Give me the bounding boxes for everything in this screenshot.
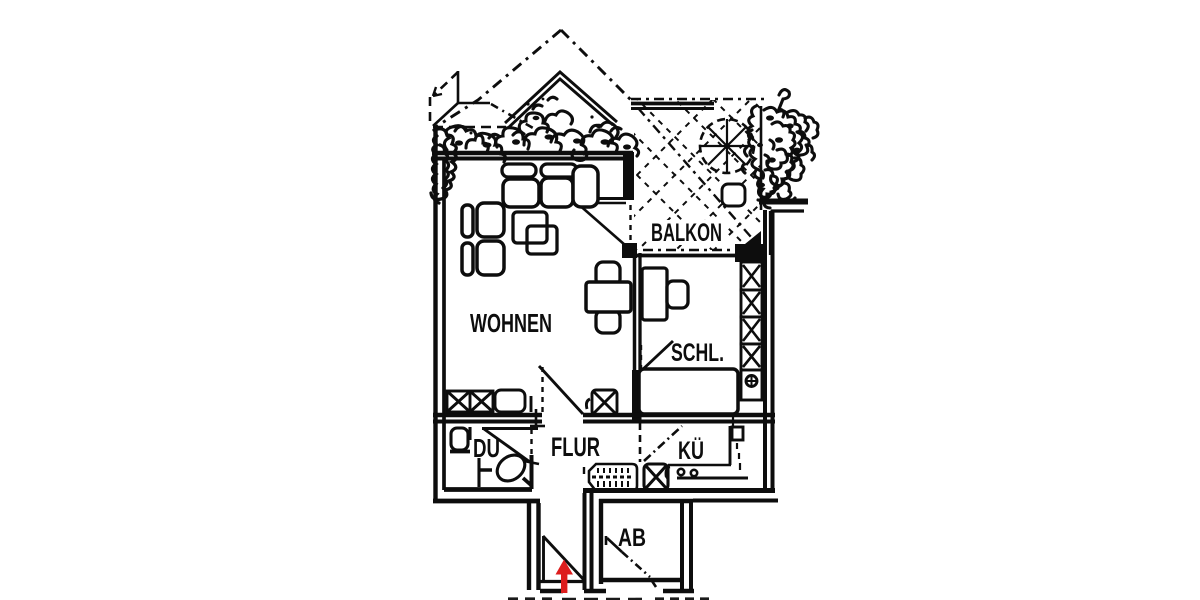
svg-text:AB: AB — [618, 524, 646, 552]
svg-text:FLUR: FLUR — [551, 432, 600, 462]
svg-text:WOHNEN: WOHNEN — [470, 308, 552, 338]
svg-text:KÜ: KÜ — [678, 436, 704, 465]
svg-text:SCHL.: SCHL. — [671, 339, 724, 367]
svg-text:BALKON: BALKON — [651, 219, 722, 247]
